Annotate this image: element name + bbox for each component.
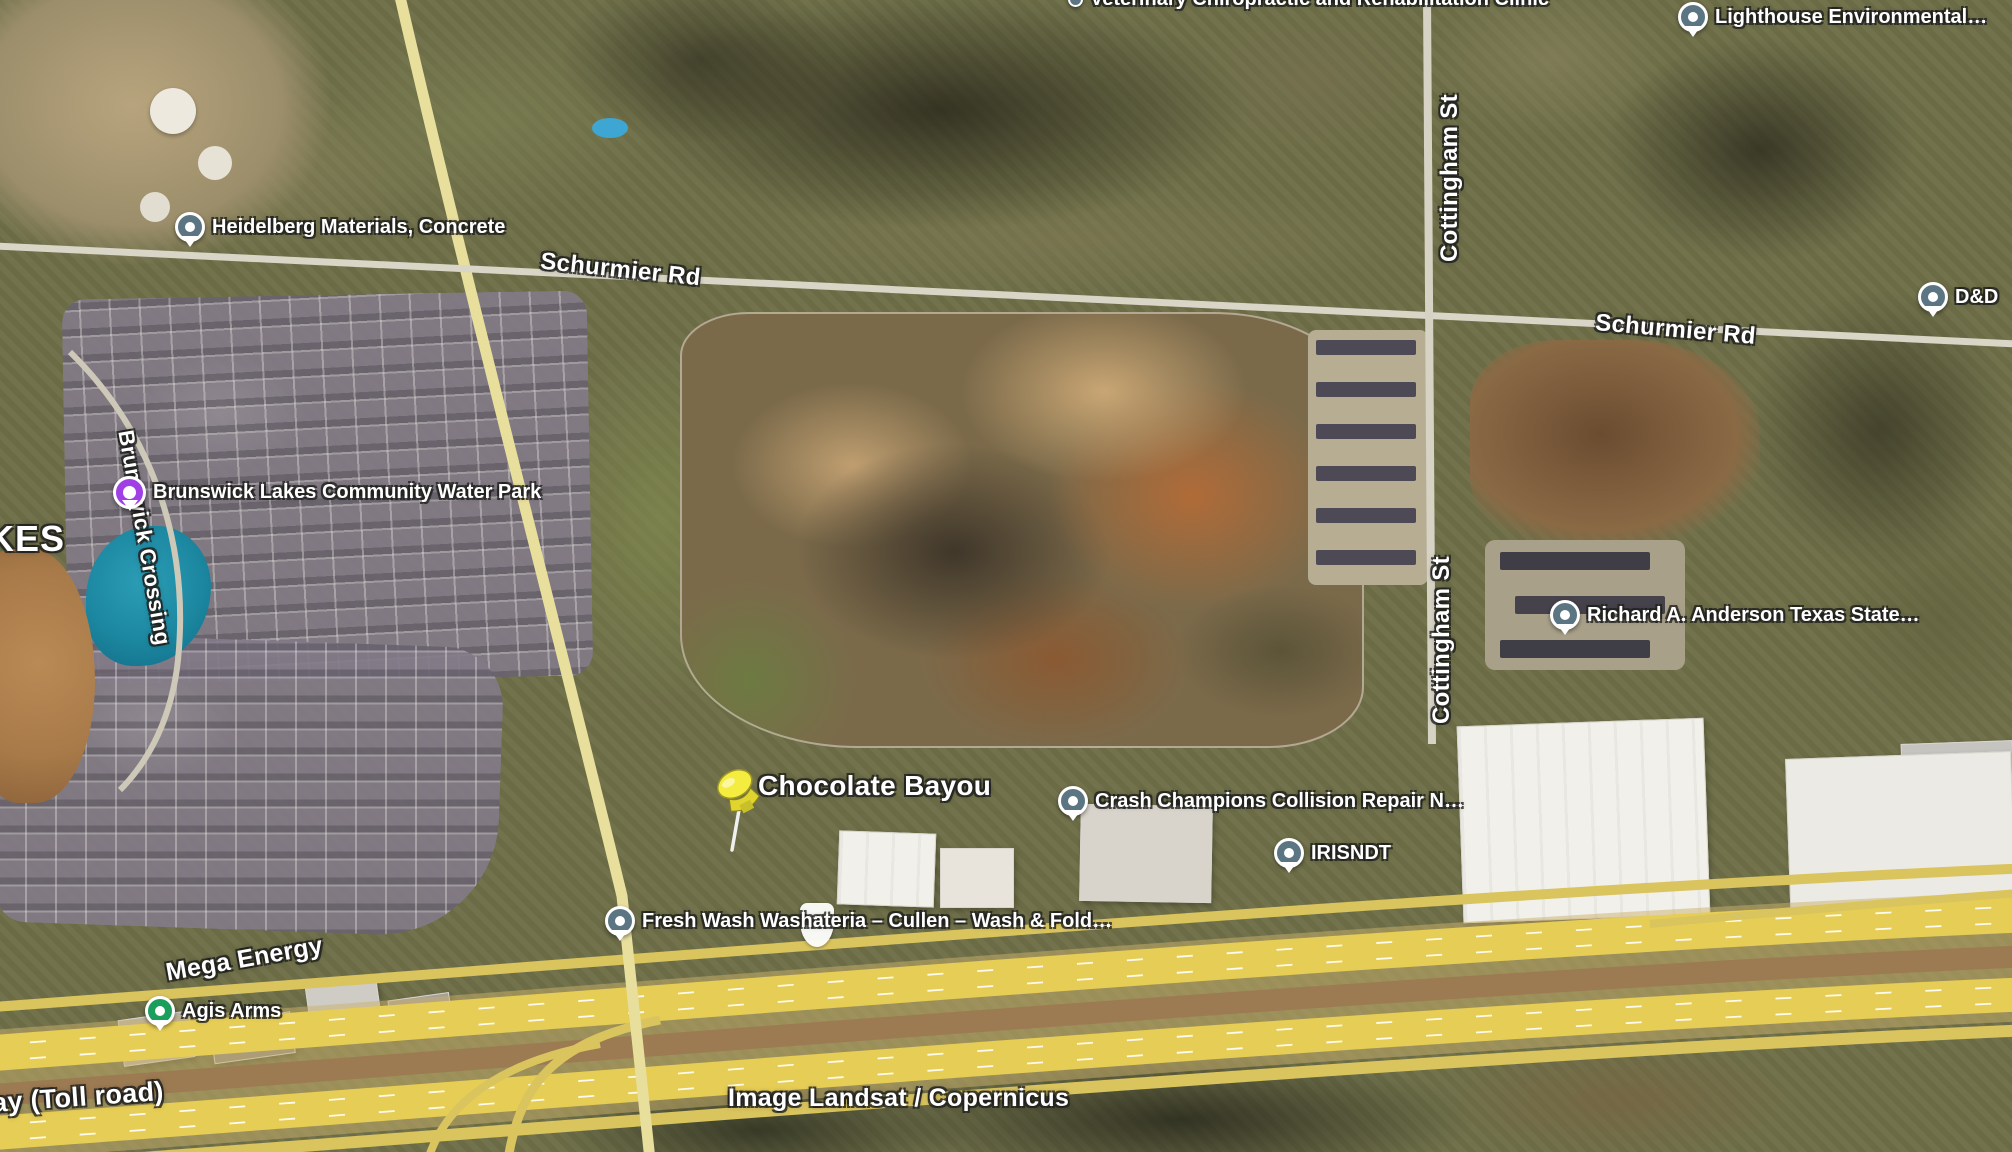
- place-pin-icon: [1550, 600, 1580, 630]
- swimming-pool: [592, 118, 628, 138]
- attraction-pin-icon: [113, 476, 146, 509]
- place-crash-champions[interactable]: Crash Champions Collision Repair N…: [1058, 786, 1464, 816]
- area-label-lakes-partial: KES: [0, 518, 65, 560]
- storage-tank: [198, 146, 232, 180]
- apartment-complex: [1308, 330, 1428, 585]
- warehouse-building: [1457, 718, 1711, 924]
- storage-tank: [150, 88, 196, 134]
- place-label: Richard A. Anderson Texas State…: [1587, 604, 1920, 627]
- search-result-label[interactable]: Chocolate Bayou: [758, 770, 991, 802]
- place-label: Brunswick Lakes Community Water Park: [153, 481, 541, 504]
- place-label: Agis Arms: [182, 1000, 281, 1023]
- place-label: IRISNDT: [1311, 842, 1391, 865]
- place-irisndt[interactable]: IRISNDT: [1274, 838, 1391, 868]
- map-attribution: Image Landsat / Copernicus: [728, 1084, 1069, 1113]
- place-pin-icon: [1274, 838, 1304, 868]
- place-dot-icon: [1068, 0, 1083, 7]
- place-heidelberg-materials[interactable]: Heidelberg Materials, Concrete: [175, 212, 505, 242]
- place-label: Crash Champions Collision Repair N…: [1095, 790, 1464, 813]
- place-veterinary-clinic[interactable]: Veterinary Chiropractic and Rehabilitati…: [1068, 0, 1549, 11]
- place-label: Fresh Wash Washateria – Cullen – Wash & …: [642, 910, 1112, 933]
- road-label-schurmier-west: Schurmier Rd: [539, 248, 702, 293]
- place-pin-icon: [605, 906, 635, 936]
- road-label-cottingham-north: Cottingham St: [1436, 94, 1464, 262]
- place-label: Veterinary Chiropractic and Rehabilitati…: [1090, 0, 1549, 11]
- satellite-map[interactable]: Schurmier Rd Schurmier Rd Cottingham St …: [0, 0, 2012, 1152]
- storage-tank: [140, 192, 170, 222]
- place-pin-icon: [1678, 2, 1708, 32]
- place-dd[interactable]: D&D: [1918, 282, 1998, 312]
- commercial-building: [837, 830, 937, 907]
- place-agis-arms[interactable]: Agis Arms: [145, 996, 281, 1026]
- place-lighthouse-environmental[interactable]: Lighthouse Environmental…: [1678, 2, 1987, 32]
- road-label-cottingham-south: Cottingham St: [1428, 556, 1456, 724]
- place-label: Heidelberg Materials, Concrete: [212, 216, 505, 239]
- place-pin-icon: [1058, 786, 1088, 816]
- dirt-pit-east: [1470, 340, 1760, 550]
- place-brunswick-water-park[interactable]: Brunswick Lakes Community Water Park: [113, 476, 541, 509]
- place-pin-icon: [175, 212, 205, 242]
- commercial-building: [940, 848, 1014, 908]
- excavation-site: [680, 312, 1364, 748]
- warehouse-building: [1785, 751, 2012, 931]
- place-fresh-wash[interactable]: Fresh Wash Washateria – Cullen – Wash & …: [605, 906, 1112, 936]
- place-richard-anderson[interactable]: Richard A. Anderson Texas State…: [1550, 600, 1920, 630]
- place-pin-icon: [1918, 282, 1948, 312]
- store-pin-icon: [145, 996, 175, 1026]
- industrial-yard-nw: [0, 0, 330, 300]
- place-label: Lighthouse Environmental…: [1715, 6, 1987, 29]
- place-label: D&D: [1955, 286, 1998, 309]
- commercial-building: [1079, 804, 1213, 903]
